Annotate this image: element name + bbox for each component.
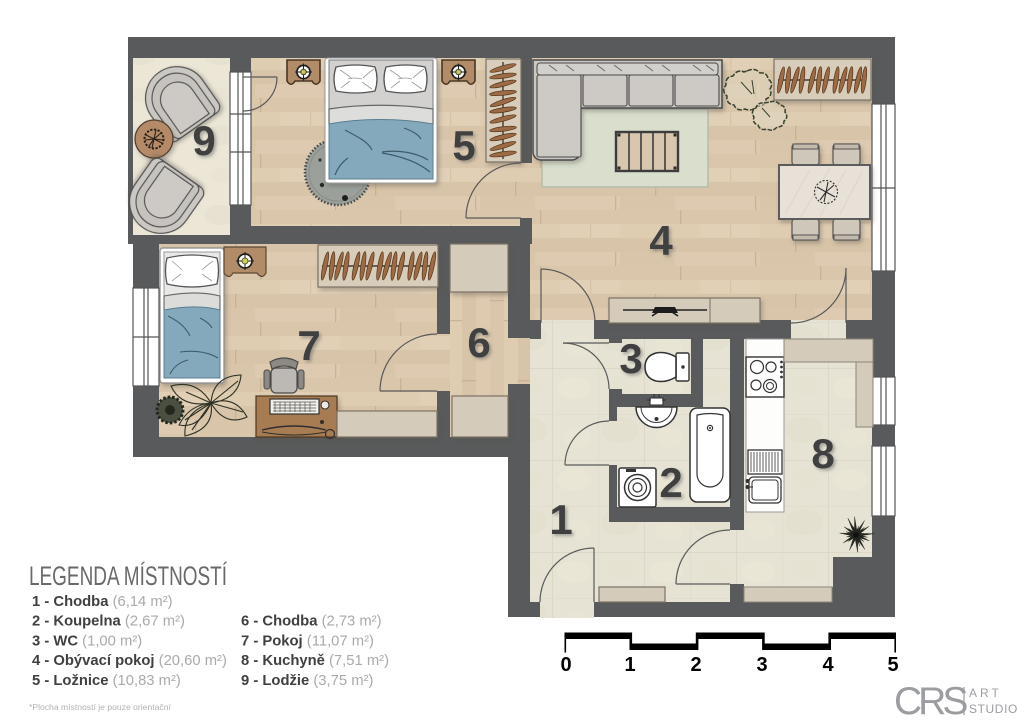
svg-text:1: 1 <box>549 496 572 543</box>
svg-text:5 - Ložnice (10,83 m²): 5 - Ložnice (10,83 m²) <box>32 673 181 689</box>
svg-text:5: 5 <box>452 122 475 169</box>
svg-text:CRS: CRS <box>894 680 967 723</box>
svg-text:ART: ART <box>969 686 1002 700</box>
svg-text:4 - Obývací pokoj (20,60 m²): 4 - Obývací pokoj (20,60 m²) <box>32 653 227 669</box>
svg-text:9 - Lodžie (3,75 m²): 9 - Lodžie (3,75 m²) <box>241 673 373 689</box>
svg-text:3: 3 <box>619 335 642 382</box>
svg-text:6 - Chodba (2,73 m²): 6 - Chodba (2,73 m²) <box>241 614 382 630</box>
svg-text:6: 6 <box>467 319 490 366</box>
svg-text:1 - Chodba (6,14 m²): 1 - Chodba (6,14 m²) <box>32 594 173 610</box>
svg-text:3: 3 <box>756 654 767 676</box>
svg-text:8: 8 <box>811 430 834 477</box>
svg-text:5: 5 <box>887 654 898 676</box>
svg-text:8 - Kuchyně (7,51 m²): 8 - Kuchyně (7,51 m²) <box>241 653 389 669</box>
svg-text:1: 1 <box>624 654 635 676</box>
svg-text:*Plocha místností je pouze ori: *Plocha místností je pouze orientační <box>29 702 171 712</box>
svg-text:2: 2 <box>659 459 682 506</box>
svg-text:7 - Pokoj (11,07 m²): 7 - Pokoj (11,07 m²) <box>241 633 374 649</box>
svg-text:9: 9 <box>192 117 215 164</box>
svg-text:4: 4 <box>649 217 673 264</box>
svg-text:7: 7 <box>297 322 320 369</box>
svg-text:0: 0 <box>560 654 571 676</box>
svg-text:2: 2 <box>690 654 701 676</box>
svg-text:4: 4 <box>822 654 834 676</box>
svg-text:2 - Koupelna (2,67 m²): 2 - Koupelna (2,67 m²) <box>32 614 185 630</box>
svg-text:3 - WC (1,00 m²): 3 - WC (1,00 m²) <box>32 633 142 649</box>
svg-text:STUDIO: STUDIO <box>969 702 1018 716</box>
svg-text:LEGENDA MÍSTNOSTÍ: LEGENDA MÍSTNOSTÍ <box>29 561 227 591</box>
